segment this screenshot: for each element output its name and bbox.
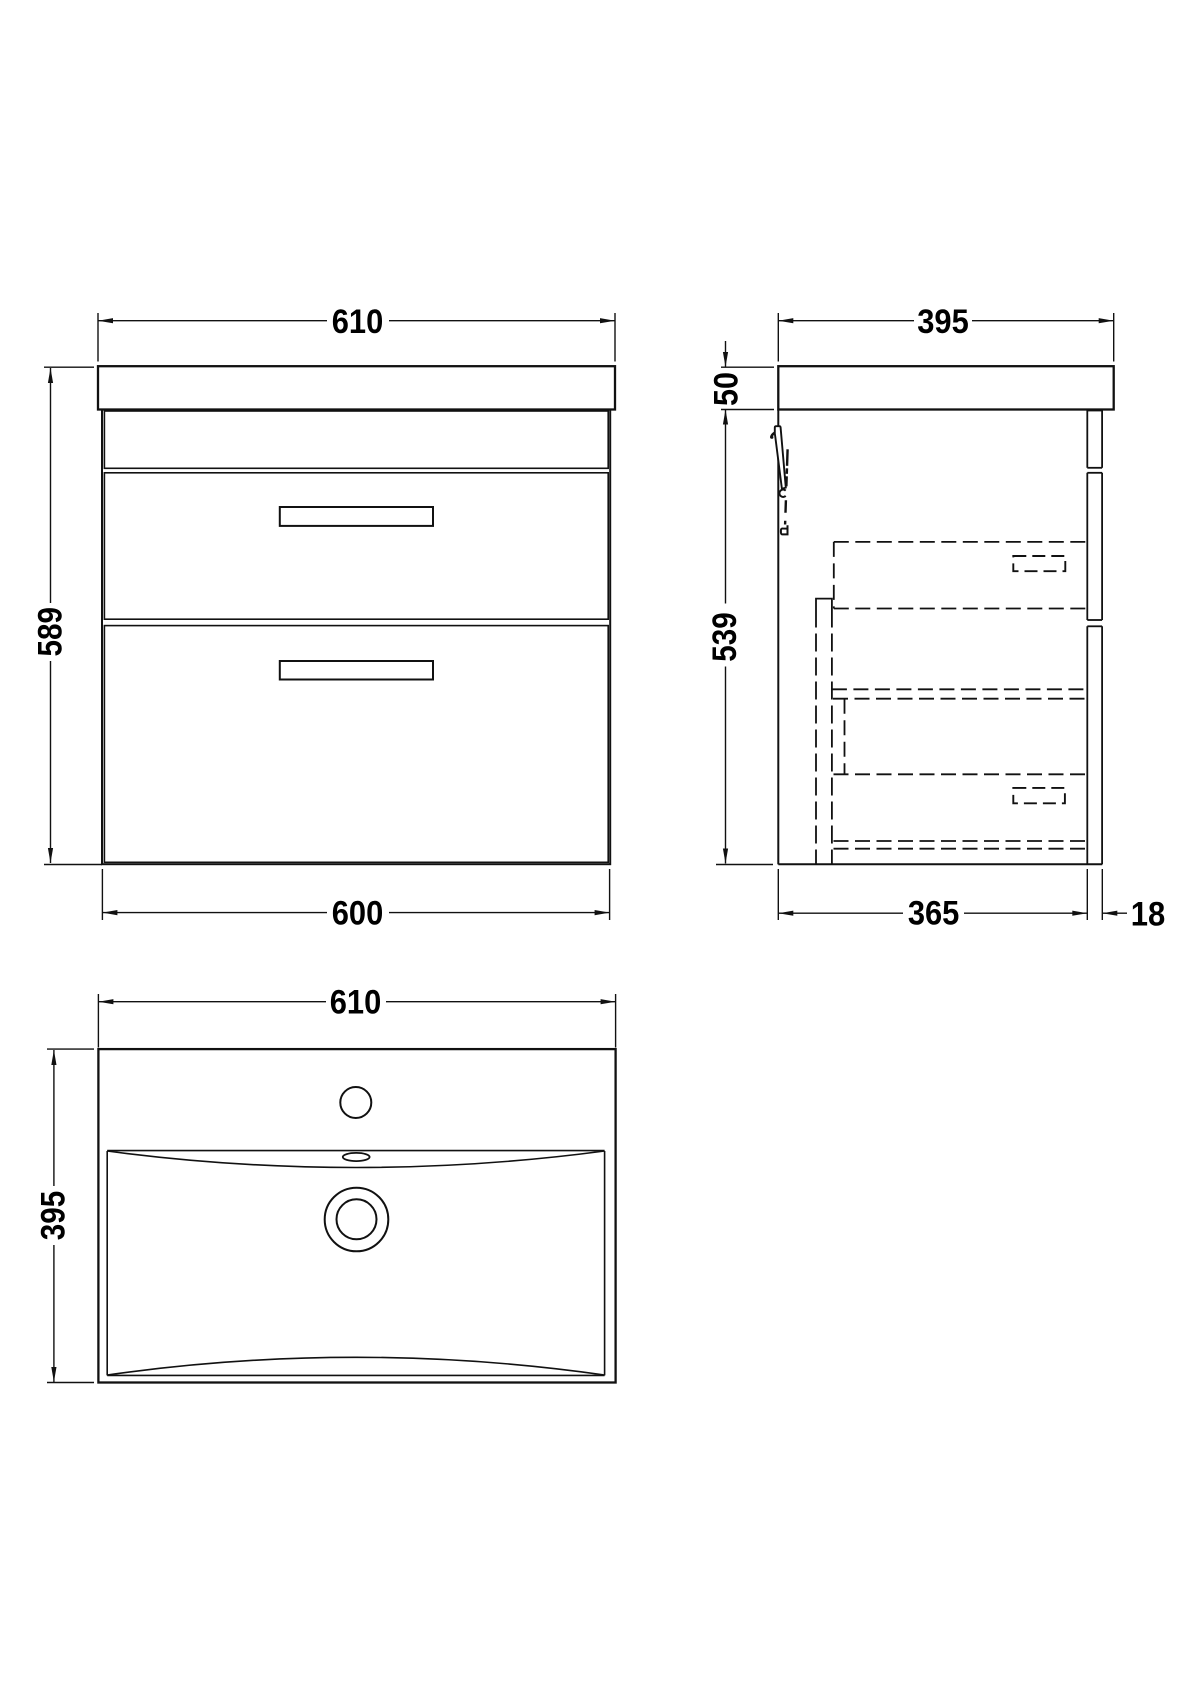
svg-text:610: 610 (332, 303, 384, 341)
svg-text:365: 365 (908, 895, 960, 933)
svg-text:395: 395 (35, 1191, 73, 1241)
svg-text:610: 610 (330, 984, 382, 1022)
svg-text:50: 50 (708, 372, 746, 406)
svg-text:600: 600 (332, 895, 384, 933)
svg-text:18: 18 (1131, 896, 1166, 934)
svg-text:539: 539 (706, 612, 744, 662)
svg-text:395: 395 (917, 303, 969, 341)
svg-text:589: 589 (31, 607, 69, 657)
